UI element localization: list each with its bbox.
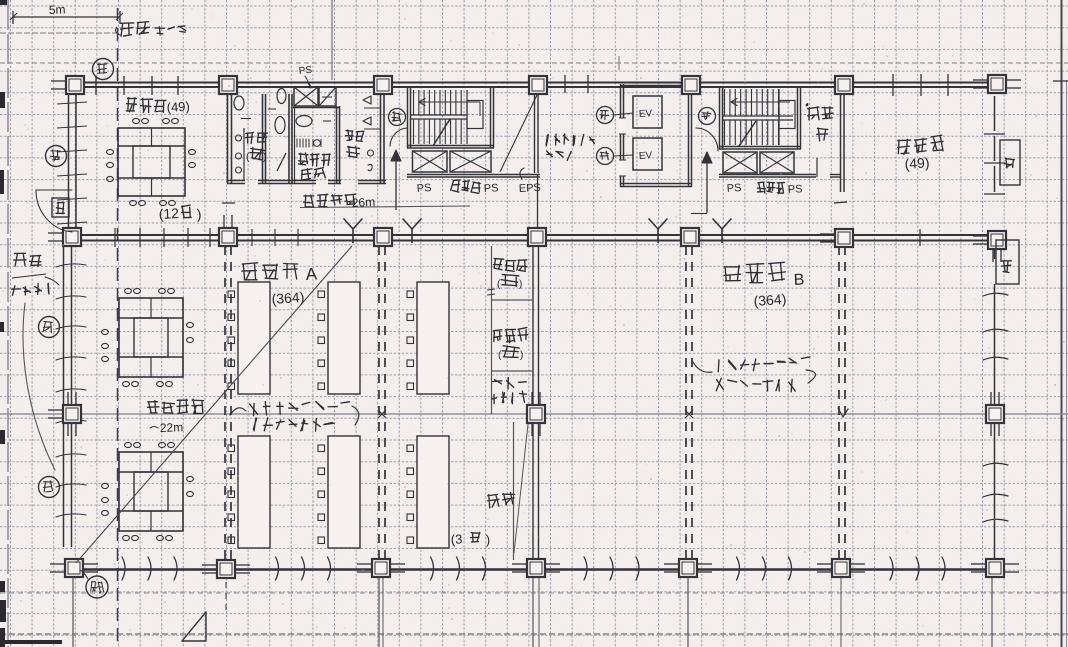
svg-text:): ): [519, 279, 522, 290]
svg-text:PS: PS: [416, 182, 431, 195]
svg-text:A: A: [305, 264, 318, 284]
svg-text:PS: PS: [298, 65, 313, 77]
svg-text:5m: 5m: [49, 2, 66, 17]
svg-text:EPS: EPS: [519, 182, 542, 195]
svg-text:): ): [485, 532, 490, 547]
svg-text:(49): (49): [166, 98, 190, 115]
svg-text:EV: EV: [639, 150, 653, 162]
svg-text:(12: (12: [158, 205, 179, 222]
svg-text:(364): (364): [753, 291, 787, 309]
svg-text:): ): [196, 206, 202, 222]
svg-text:): ): [520, 350, 523, 361]
svg-text:(49): (49): [904, 154, 930, 172]
svg-text:(3: (3: [450, 531, 462, 547]
svg-text:22m: 22m: [160, 420, 184, 435]
svg-text:26m: 26m: [351, 195, 375, 210]
svg-text:EV: EV: [639, 108, 653, 120]
svg-text:PS: PS: [726, 182, 741, 195]
svg-text:PS: PS: [788, 183, 803, 196]
svg-text:(364): (364): [271, 289, 305, 307]
svg-text:PS: PS: [484, 182, 499, 195]
svg-text:): ): [263, 152, 266, 163]
svg-text:B: B: [793, 271, 805, 289]
